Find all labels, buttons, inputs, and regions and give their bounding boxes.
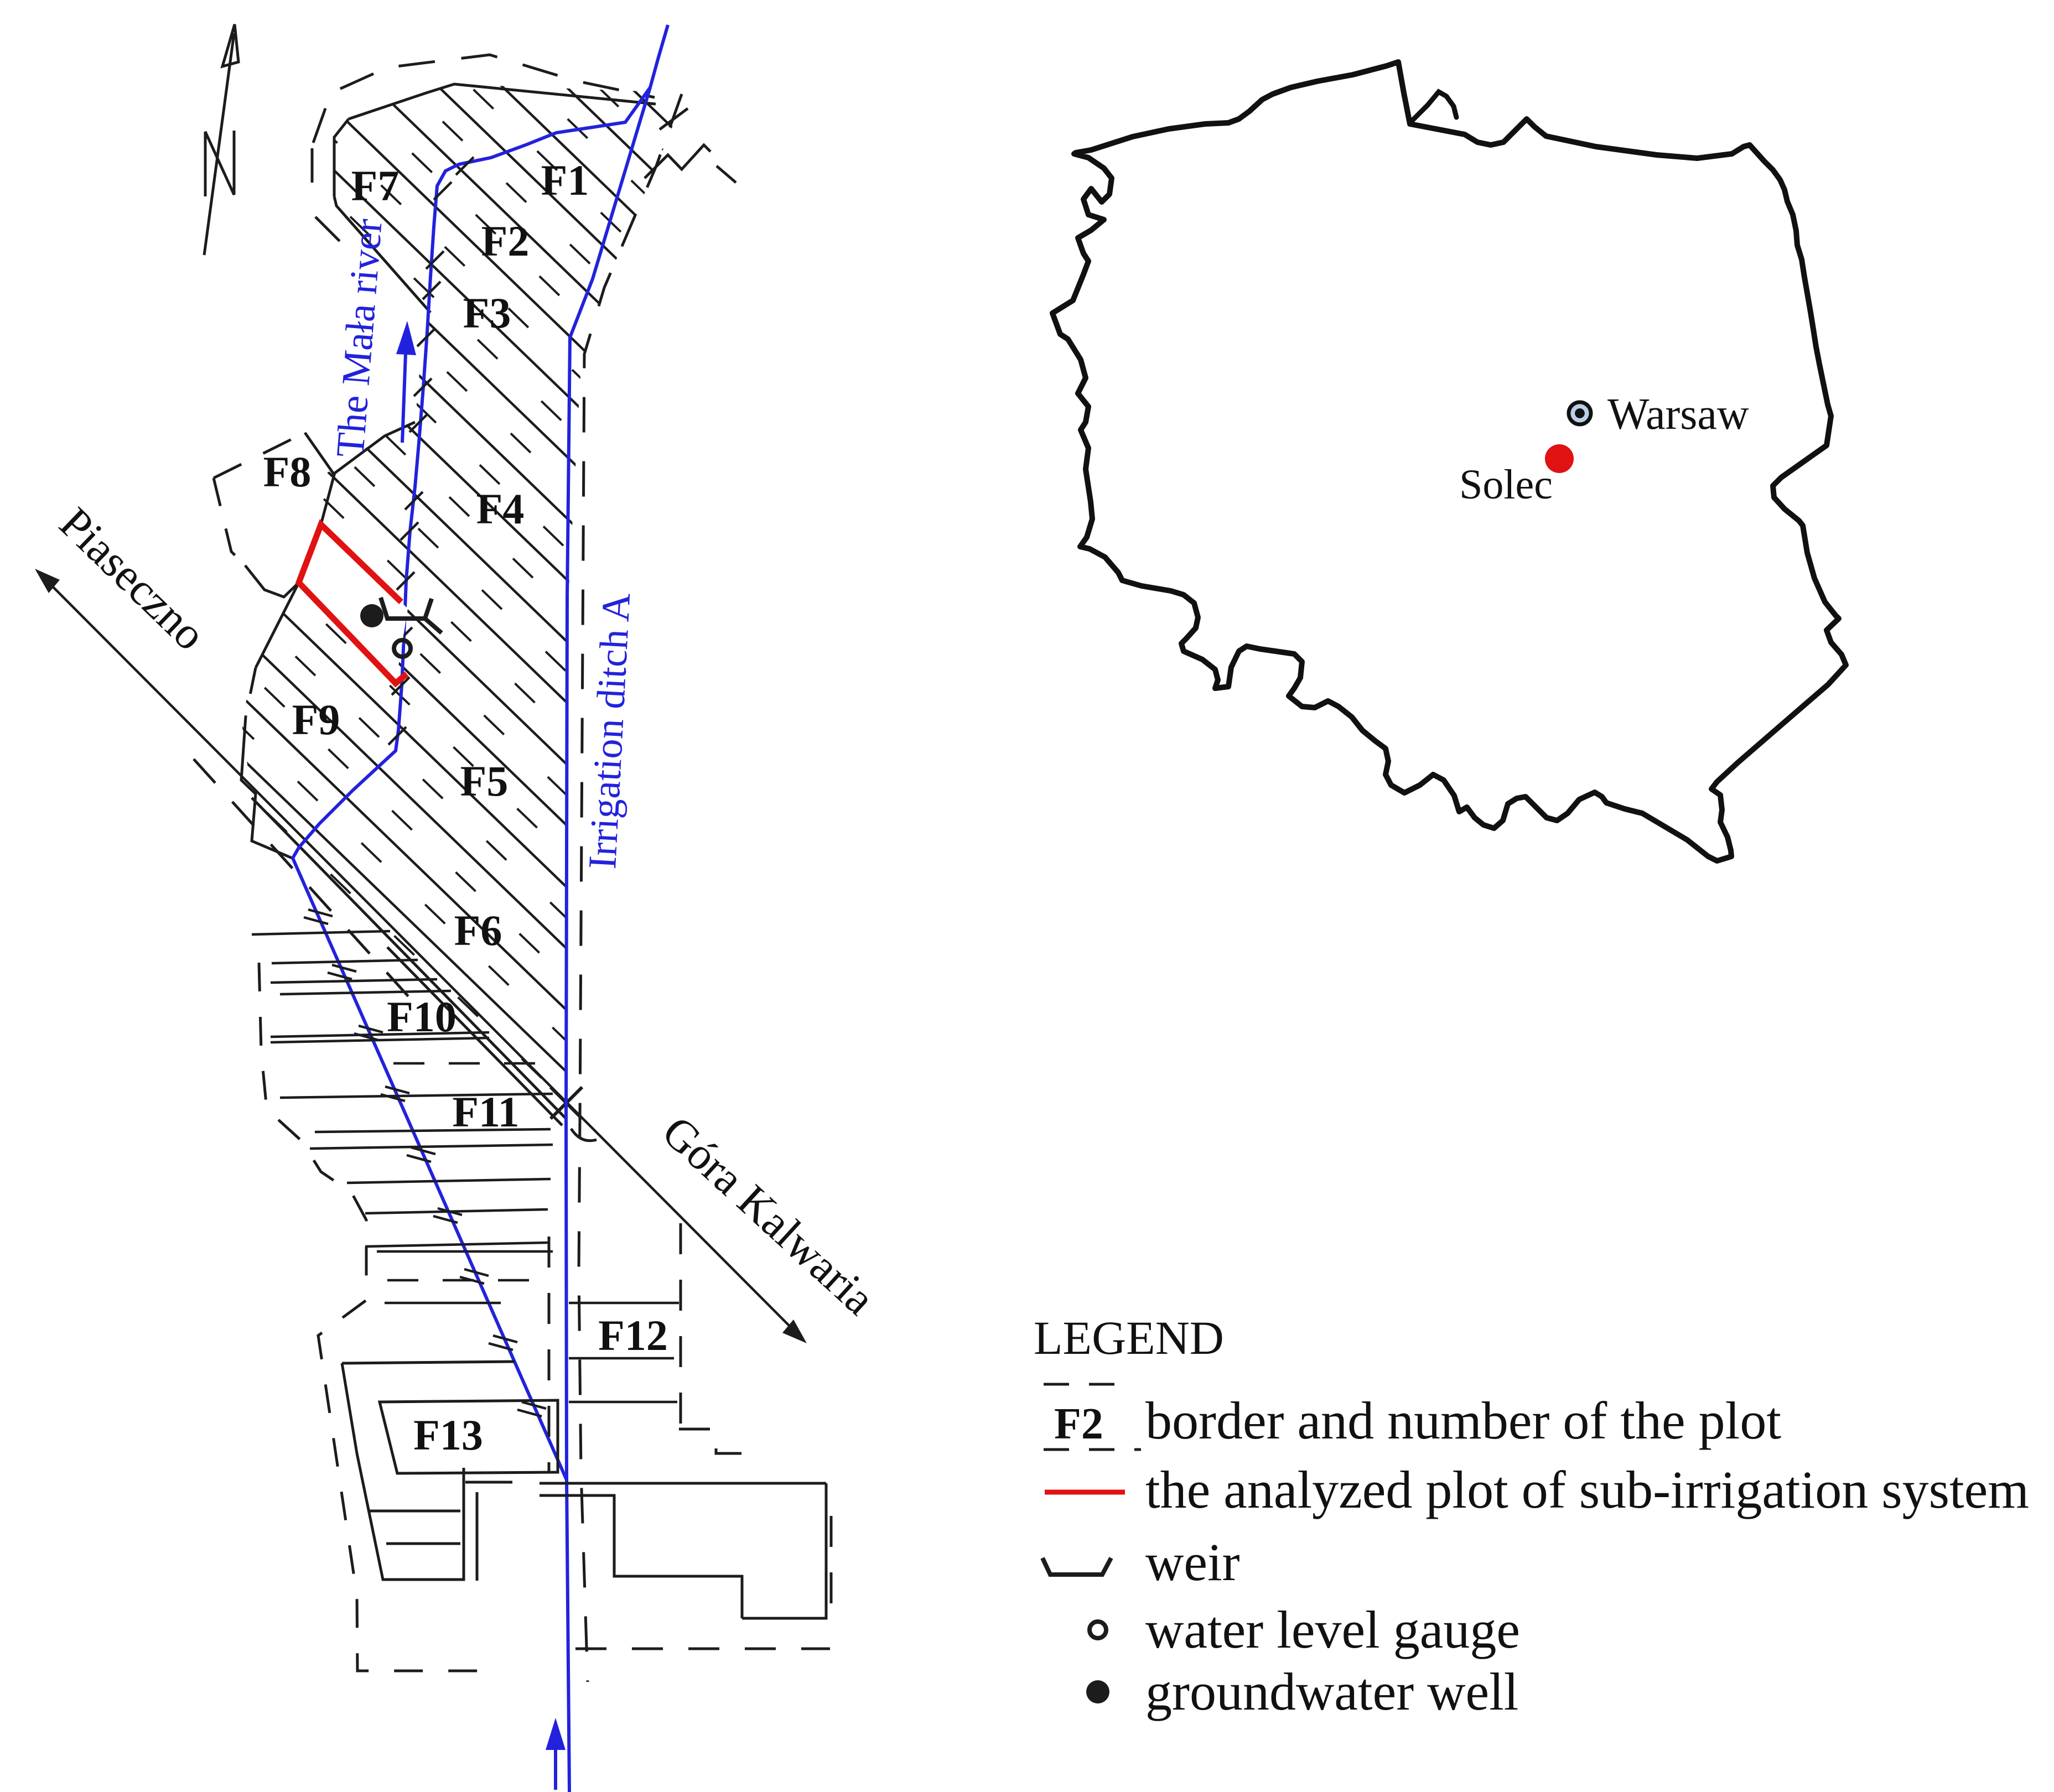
svg-text:LEGEND: LEGEND — [1034, 1311, 1224, 1364]
svg-text:F3: F3 — [463, 289, 511, 337]
svg-text:F13: F13 — [413, 1411, 483, 1459]
svg-text:groundwater well: groundwater well — [1145, 1662, 1518, 1721]
svg-text:border and number of the plot: border and number of the plot — [1145, 1391, 1781, 1450]
svg-text:F2: F2 — [481, 217, 530, 265]
svg-text:F6: F6 — [454, 906, 502, 954]
svg-text:F1: F1 — [541, 156, 589, 204]
svg-text:weir: weir — [1145, 1533, 1240, 1592]
svg-text:F7: F7 — [351, 162, 400, 210]
svg-text:F12: F12 — [598, 1311, 668, 1359]
svg-text:water level gauge: water level gauge — [1145, 1600, 1520, 1659]
svg-text:F9: F9 — [292, 695, 340, 744]
svg-text:F5: F5 — [460, 757, 509, 805]
svg-text:F2: F2 — [1054, 1400, 1103, 1448]
svg-text:Solec: Solec — [1459, 461, 1553, 508]
svg-text:F8: F8 — [263, 448, 312, 496]
svg-text:the analyzed plot of sub-irrig: the analyzed plot of sub-irrigation syst… — [1145, 1460, 2029, 1519]
svg-text:F4: F4 — [476, 485, 525, 533]
svg-text:Warsaw: Warsaw — [1607, 390, 1749, 439]
